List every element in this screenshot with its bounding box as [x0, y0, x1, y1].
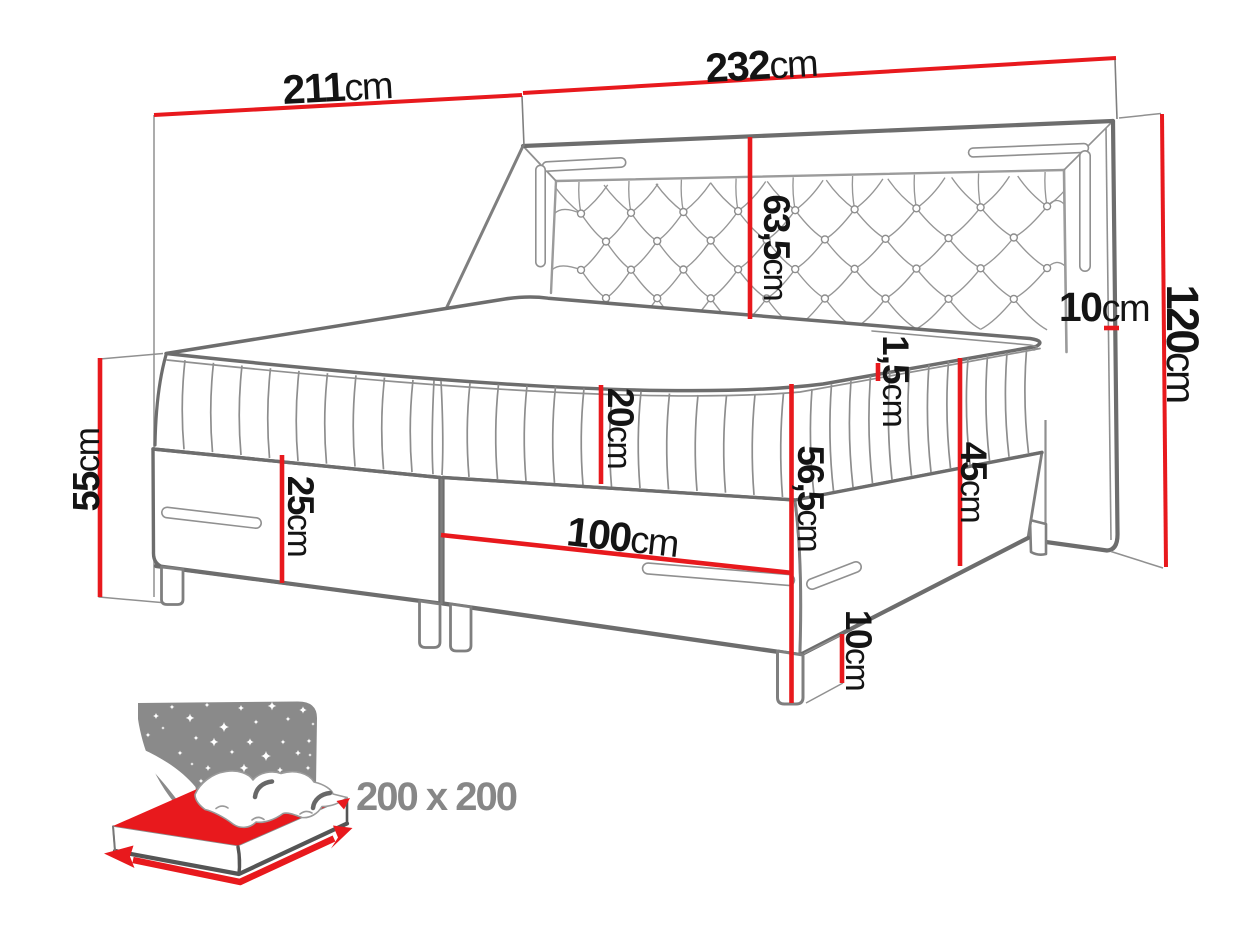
- svg-text:1,5cm: 1,5cm: [875, 335, 916, 427]
- svg-text:20cm: 20cm: [600, 388, 641, 469]
- svg-text:55cm: 55cm: [66, 429, 108, 512]
- svg-text:63,5cm: 63,5cm: [756, 194, 797, 300]
- svg-text:120cm: 120cm: [1157, 284, 1208, 402]
- svg-text:45cm: 45cm: [953, 442, 994, 523]
- svg-text:10cm: 10cm: [1059, 284, 1149, 330]
- svg-text:10cm: 10cm: [838, 610, 879, 691]
- svg-text:232cm: 232cm: [704, 39, 818, 92]
- svg-text:25cm: 25cm: [280, 476, 321, 557]
- svg-text:56,5cm: 56,5cm: [790, 445, 831, 551]
- svg-text:211cm: 211cm: [281, 61, 393, 113]
- svg-text:200 x 200: 200 x 200: [356, 775, 517, 819]
